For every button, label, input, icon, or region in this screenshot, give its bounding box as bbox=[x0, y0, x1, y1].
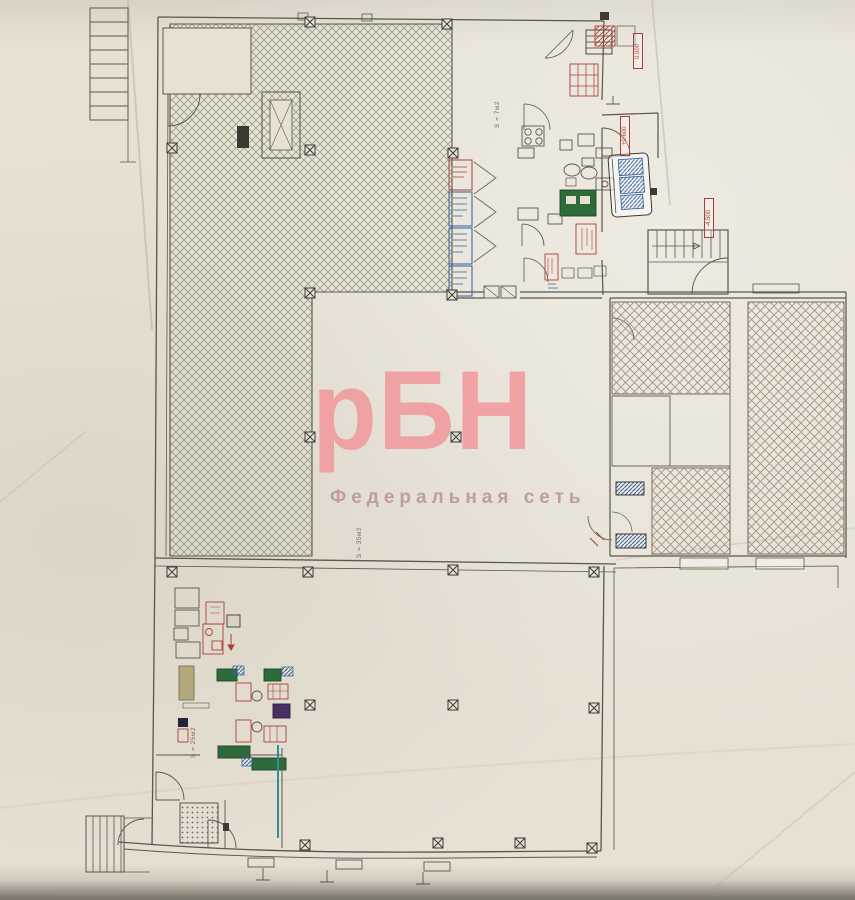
escalator-unit bbox=[608, 153, 652, 218]
stairs-top-left bbox=[90, 8, 136, 162]
area-label-hall: S = 35м2 bbox=[356, 508, 363, 558]
folding-door-zigzag bbox=[474, 162, 496, 262]
double-door bbox=[484, 286, 516, 298]
area-label-service: S = 25м2 bbox=[190, 712, 197, 758]
shelf-unit bbox=[179, 666, 194, 700]
right-wing-rooms bbox=[588, 302, 844, 554]
sink-unit bbox=[560, 190, 596, 216]
wall-mark bbox=[650, 188, 657, 195]
photo-shadow bbox=[0, 880, 855, 900]
top-right-service-box bbox=[595, 26, 635, 46]
elevation-label-plus: +0.600 bbox=[620, 116, 630, 156]
entry-mat bbox=[180, 803, 218, 843]
watermark-logo: рБН bbox=[312, 352, 533, 470]
elevation-label-zero: 0.000 bbox=[633, 33, 643, 69]
toilet-fixture bbox=[616, 482, 644, 495]
toilet-fixture bbox=[616, 534, 646, 548]
area-label-kitchen: S = 7м2 bbox=[494, 82, 501, 128]
equipment-purple bbox=[273, 704, 290, 718]
door-leaf-mark bbox=[237, 126, 249, 148]
display-cases bbox=[449, 160, 496, 296]
watermark-subtitle: Федеральная сеть bbox=[330, 487, 586, 509]
kitchen-equipment bbox=[518, 12, 614, 292]
elevation-label-minus: -4.500 bbox=[704, 198, 714, 238]
scanned-floor-plan: рБН Федеральная сеть 0.000 +0.600 -4.500… bbox=[0, 0, 855, 900]
